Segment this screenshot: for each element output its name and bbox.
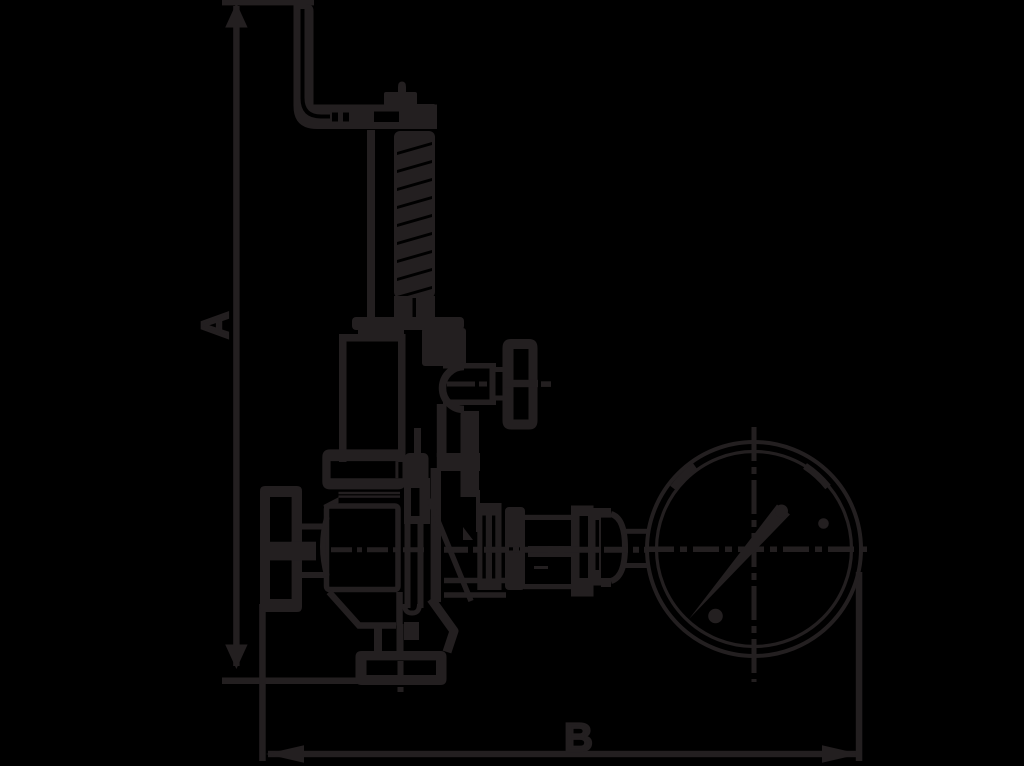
- svg-text:A: A: [195, 312, 237, 339]
- svg-text:B: B: [564, 716, 593, 760]
